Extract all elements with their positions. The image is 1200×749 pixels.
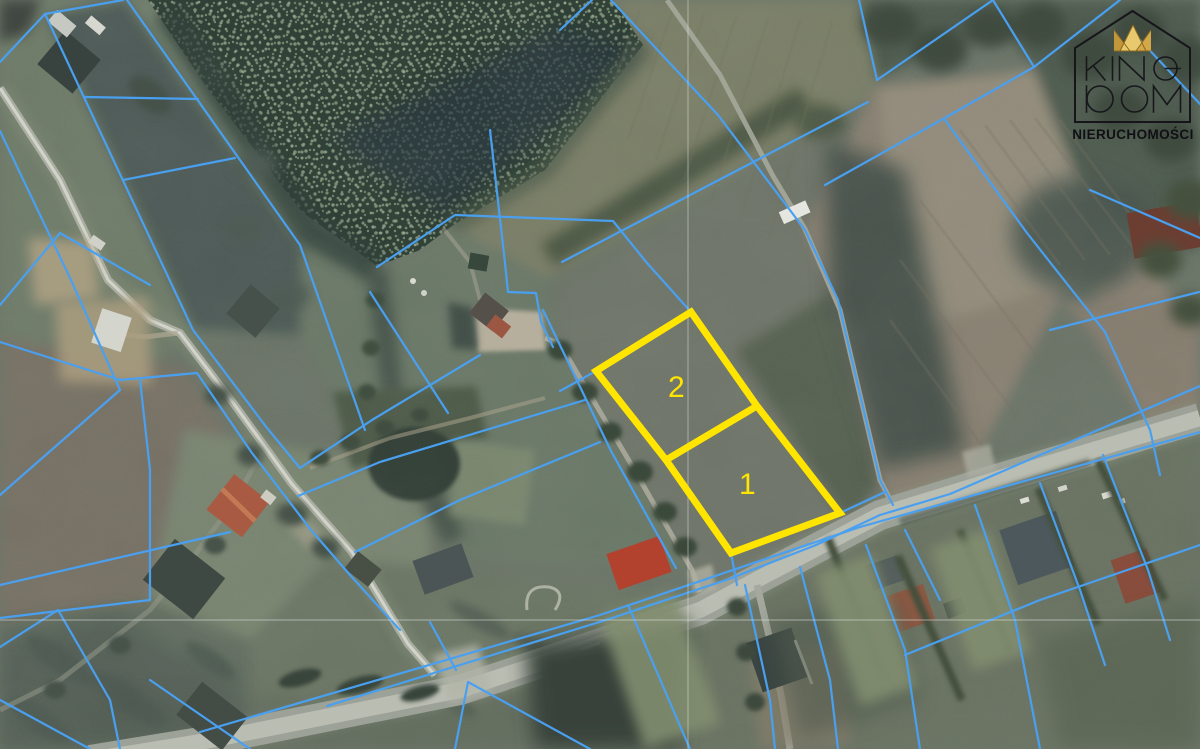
svg-text:1: 1 [739,468,756,501]
svg-text:2: 2 [668,371,685,404]
svg-text:NIERUCHOMOŚCI: NIERUCHOMOŚCI [1072,127,1193,142]
